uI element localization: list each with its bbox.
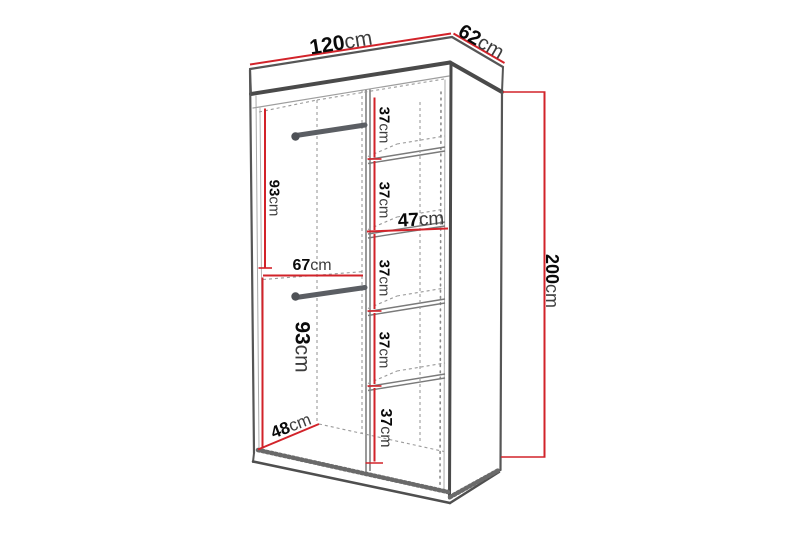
dim-shelf-3-unit: cm xyxy=(376,276,393,296)
hanging-rail-bottom xyxy=(291,288,365,301)
dim-label-shelf-width: 47cm xyxy=(397,209,444,230)
dim-label-shelf-1: 37cm xyxy=(377,107,392,144)
dim-shelf-3-value: 37 xyxy=(376,260,393,277)
dim-shelf-width-unit: cm xyxy=(418,208,444,230)
dim-shelf-1-value: 37 xyxy=(376,107,393,124)
dim-label-hanging-bottom: 93cm xyxy=(292,321,313,372)
dim-shelf-4-value: 37 xyxy=(376,332,393,349)
dim-width-unit: cm xyxy=(343,27,374,54)
dim-shelf-5-unit: cm xyxy=(377,426,394,447)
hanging-rail-top xyxy=(291,125,365,141)
dim-hanging-top-unit: cm xyxy=(266,196,283,216)
dim-left-section-value: 67 xyxy=(292,257,310,274)
dim-hanging-bottom-unit: cm xyxy=(291,345,314,373)
dim-label-shelf-5: 37cm xyxy=(377,408,393,447)
dim-height-value: 200 xyxy=(542,254,562,284)
dim-shelf-1-unit: cm xyxy=(376,123,393,143)
wardrobe-dimension-diagram: 120cm 62cm 200cm 93cm 93cm 67cm 48cm 47c… xyxy=(0,0,800,533)
dim-left-section-unit: cm xyxy=(310,257,331,274)
dim-shelf-4-unit: cm xyxy=(376,348,393,368)
dim-hanging-bottom-value: 93 xyxy=(291,321,314,344)
hidden-depth-lines xyxy=(259,79,445,452)
dim-shelf-2-unit: cm xyxy=(376,198,393,218)
dim-shelf-5-value: 37 xyxy=(377,408,394,426)
dim-label-hanging-top: 93cm xyxy=(267,180,282,217)
dim-label-shelf-2: 37cm xyxy=(377,182,392,219)
dim-label-shelf-3: 37cm xyxy=(377,260,392,297)
dim-hanging-top-value: 93 xyxy=(266,180,283,197)
dim-label-shelf-4: 37cm xyxy=(377,332,392,369)
dim-height-unit: cm xyxy=(542,284,562,308)
dim-shelf-width-value: 47 xyxy=(397,210,419,232)
dim-shelf-2-value: 37 xyxy=(376,182,393,199)
dim-label-height: 200cm xyxy=(543,254,561,308)
wardrobe-line-art xyxy=(0,0,800,533)
dim-label-left-section-width: 67cm xyxy=(292,258,331,274)
